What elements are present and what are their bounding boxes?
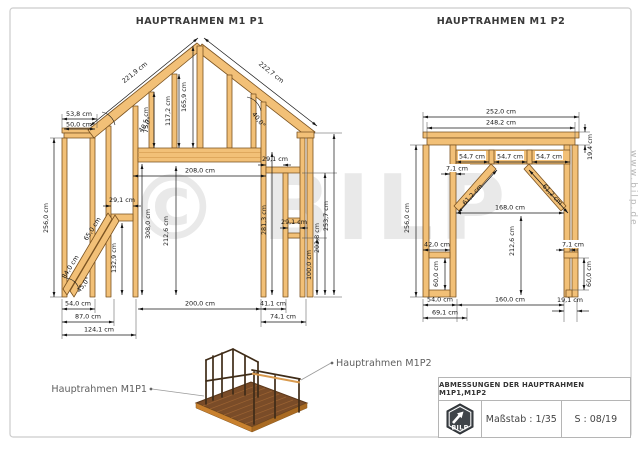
dim-label: 75,5 cm bbox=[142, 107, 150, 133]
leader-dot bbox=[150, 388, 153, 391]
dim-label: 41,1 cm bbox=[260, 300, 286, 308]
dim-label: 248,2 cm bbox=[486, 119, 516, 127]
title-block-heading: ABMESSUNGEN DER HAUPTRAHMEN M1P1,M1P2 bbox=[439, 378, 630, 401]
dim-label: 29,1 cm bbox=[262, 155, 288, 163]
dim-label: 202,8 cm bbox=[313, 223, 321, 253]
dim-label: 212,6 cm bbox=[508, 226, 516, 256]
dim-label: 19,1 cm bbox=[557, 296, 583, 304]
dim-label: 222,7 cm bbox=[257, 60, 286, 85]
dim-label: 29,1 cm bbox=[281, 218, 307, 226]
frame1-title: HAUPTRAHMEN M1 P1 bbox=[136, 16, 265, 27]
dim-label: 256,0 cm bbox=[42, 203, 50, 233]
logo-cell: BILP bbox=[439, 401, 482, 437]
dim-label: 19,4 cm bbox=[586, 134, 594, 160]
dim-label: 54,7 cm bbox=[536, 153, 562, 161]
frame1-dimensions: 53,8 cm 50,0 cm 221,9 cm 222,7 cm 40,0° … bbox=[42, 38, 342, 339]
overview-label-m1p2: Hauptrahmen M1P2 bbox=[336, 358, 432, 369]
dim-label: 54,0 cm bbox=[427, 296, 453, 304]
frame2-title: HAUPTRAHMEN M1 P2 bbox=[437, 16, 566, 27]
dim-label: 74,1 cm bbox=[270, 313, 296, 321]
isometric-overview bbox=[196, 349, 307, 432]
dim-label: 60,0 cm bbox=[432, 261, 440, 287]
dim-label: 50,0 cm bbox=[66, 121, 92, 129]
dim-label: 54,7 cm bbox=[497, 153, 523, 161]
dim-label: 165,9 cm bbox=[180, 82, 188, 112]
overview-label-m1p1: Hauptrahmen M1P1 bbox=[51, 384, 147, 395]
dim-label: 54,0 cm bbox=[65, 300, 91, 308]
dim-label: 87,0 cm bbox=[75, 313, 101, 321]
dim-label: 208,0 cm bbox=[185, 167, 215, 175]
dim-label: 29,1 cm bbox=[109, 196, 135, 204]
dim-label: 281,3 cm bbox=[260, 205, 268, 235]
dim-label: 100,0 cm bbox=[305, 250, 313, 280]
loft-beam bbox=[138, 148, 261, 162]
ridge-post bbox=[197, 46, 203, 148]
logo-text: BILP bbox=[451, 425, 468, 432]
dim-label: 132,9 cm bbox=[110, 243, 118, 273]
dim-label: 54,7 cm bbox=[459, 153, 485, 161]
title-block: ABMESSUNGEN DER HAUPTRAHMEN M1P1,M1P2 BI… bbox=[438, 377, 631, 438]
dim-label: 7,1 cm bbox=[446, 165, 468, 173]
dim-label: 308,0 cm bbox=[144, 209, 152, 239]
dim-label: 117,2 cm bbox=[164, 96, 172, 126]
dim-label: 69,1 cm bbox=[432, 309, 458, 317]
dim-label: 42,0 cm bbox=[424, 241, 450, 249]
bilp-logo: BILP bbox=[445, 403, 475, 435]
dim-label: 160,0 cm bbox=[495, 296, 525, 304]
dim-label: 124,1 cm bbox=[84, 326, 114, 334]
dim-label: 200,0 cm bbox=[185, 300, 215, 308]
dim-label: 212,6 cm bbox=[162, 216, 170, 246]
scale-value: Maßstab : 1/35 bbox=[482, 401, 562, 437]
sheet-number: S : 08/19 bbox=[562, 401, 630, 437]
dim-label: 7,1 cm bbox=[562, 241, 584, 249]
dim-label: 168,0 cm bbox=[495, 204, 525, 212]
dim-label: 53,8 cm bbox=[66, 110, 92, 118]
leader-line bbox=[301, 363, 331, 380]
leader-line bbox=[152, 389, 204, 396]
dim-label: 253,7 cm bbox=[322, 201, 330, 231]
leader-dot bbox=[331, 362, 334, 365]
dim-label: 60,0 cm bbox=[585, 261, 593, 287]
dim-label: 252,0 cm bbox=[486, 108, 516, 116]
plan-sheet: © BILP www.bilp.de HAUPTRAHMEN M1 P1 HAU… bbox=[0, 0, 640, 452]
dim-label: 256,0 cm bbox=[403, 203, 411, 233]
dim-label: 61,2 cm bbox=[541, 182, 565, 206]
